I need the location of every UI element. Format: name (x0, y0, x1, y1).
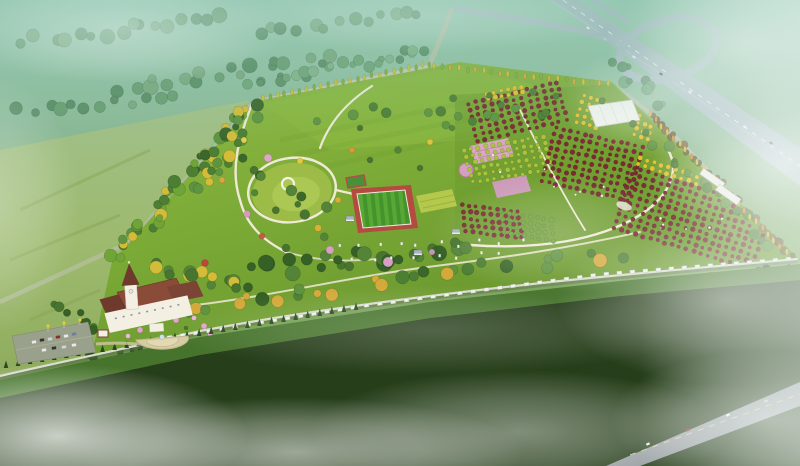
flowering-tree (202, 260, 209, 267)
tree (104, 249, 117, 262)
orchard-tree (512, 167, 516, 171)
tree (258, 255, 274, 271)
bee-box (414, 244, 416, 247)
orchard-tree (612, 167, 616, 171)
orchard-tree (608, 153, 612, 157)
orchard-tree (514, 173, 518, 177)
orchard-tree (617, 175, 621, 179)
bee-box (413, 256, 415, 259)
orchard-tree (509, 153, 513, 157)
orchard-tree (581, 168, 585, 172)
orchard-tree (483, 171, 488, 176)
orchard-tree (596, 170, 600, 174)
flowering-tree (315, 225, 322, 232)
aerial-rendering-svg (0, 0, 800, 466)
orchard-tree (559, 162, 563, 166)
tree (300, 210, 310, 220)
tree (441, 267, 454, 280)
tree (394, 255, 403, 264)
flowering-tree (126, 334, 131, 339)
flag-banner (46, 324, 49, 327)
orchard-tree (600, 151, 604, 155)
orchard-tree (571, 171, 576, 176)
clock-tower (124, 283, 138, 310)
bee-box (390, 257, 392, 260)
flag-banner (62, 321, 65, 324)
soccer-pitch (357, 190, 411, 228)
orchard-tree (469, 173, 473, 177)
orchard-tree (563, 149, 567, 153)
tree (223, 150, 235, 162)
orchard-tree (603, 164, 608, 169)
garden-hut-wall (346, 220, 354, 221)
tree (54, 302, 64, 312)
bee-box (401, 242, 403, 245)
orchard-tree (582, 161, 586, 165)
garden-hut-wall (414, 254, 422, 255)
orchard-tree (500, 175, 504, 179)
orchard-tree (489, 163, 494, 168)
tree (543, 168, 545, 170)
tree (286, 185, 297, 196)
flowering-tree (326, 246, 334, 254)
flag-banner (78, 318, 81, 321)
tower-clock (129, 289, 133, 293)
tree (116, 253, 125, 262)
orchard-tree (557, 168, 562, 173)
flowering-tree (297, 158, 303, 164)
tree (132, 219, 142, 229)
tree (256, 172, 265, 181)
aerial-rendering (0, 0, 800, 466)
orchard-tree (569, 157, 572, 160)
tree (150, 261, 163, 274)
flowering-tree (259, 233, 265, 239)
orchard-tree (474, 167, 478, 171)
tree (250, 166, 258, 174)
tree (321, 202, 332, 213)
orchard-tree (619, 168, 623, 172)
tree (208, 272, 218, 282)
tree (159, 195, 169, 205)
orchard-tree (485, 178, 489, 182)
orchard-tree (545, 159, 550, 164)
orchard-tree (485, 150, 489, 154)
tree (156, 214, 163, 221)
orchard-tree (636, 162, 640, 166)
orchard-tree (527, 163, 531, 167)
flowering-tree (367, 157, 373, 163)
bee-box (351, 258, 353, 261)
flowering-tree (264, 154, 272, 162)
orchard-tree (541, 162, 545, 166)
flowering-tree (335, 197, 341, 203)
flowering-tree (244, 211, 251, 218)
tree (295, 201, 301, 207)
orchard-tree (524, 158, 529, 163)
orchard-tree (610, 174, 614, 178)
orchard-tree (536, 170, 540, 174)
orchard-tree (570, 150, 575, 155)
orchard-tree (505, 167, 510, 172)
gatehouse (98, 330, 108, 337)
orchard-tree (606, 158, 610, 162)
flowering-tree (282, 244, 290, 252)
tree (251, 189, 258, 196)
bee-box (374, 259, 376, 262)
orchard-tree (615, 154, 619, 158)
orchard-tree (532, 156, 535, 159)
orchard-tree (471, 153, 475, 157)
orchard-tree (465, 162, 469, 166)
orchard-tree (473, 159, 478, 164)
tree (345, 262, 354, 271)
orchard-tree (633, 166, 637, 170)
orchard-tree (598, 163, 601, 166)
orchard-tree (481, 164, 486, 169)
tree (333, 255, 342, 264)
orchard-tree (599, 157, 604, 162)
orchard-tree (467, 167, 471, 171)
orchard-tree (634, 182, 639, 187)
mist-blob (170, 285, 690, 375)
orchard-tree (534, 163, 538, 167)
orchard-tree (591, 155, 596, 160)
orchard-tree (552, 160, 557, 165)
orchard-tree (478, 179, 482, 183)
orchard-tree (487, 156, 491, 160)
orchard-tree (575, 160, 578, 163)
orchard-tree (507, 174, 511, 178)
orchard-tree (517, 159, 521, 163)
tree (216, 169, 223, 176)
orchard-tree (528, 170, 533, 175)
tree (418, 266, 429, 277)
orchard-tree (496, 163, 500, 167)
tree (213, 158, 223, 168)
tree (285, 266, 300, 281)
tree (231, 283, 240, 292)
tree (63, 309, 70, 316)
tree (396, 270, 409, 283)
orchard-tree (477, 172, 481, 176)
tree (297, 192, 307, 202)
orchard-tree (504, 161, 508, 165)
orchard-tree (614, 160, 618, 164)
orchard-tree (521, 172, 525, 176)
orchard-tree (622, 155, 626, 159)
tree (283, 253, 296, 266)
orchard-tree (553, 154, 558, 159)
tree (118, 235, 127, 244)
orchard-tree (589, 162, 594, 167)
orchard-tree (547, 152, 551, 156)
orchard-tree (587, 169, 591, 173)
orchard-tree (633, 171, 637, 175)
basketball-court (346, 175, 366, 188)
orchard-tree (603, 172, 606, 175)
right-fog-fade (640, 0, 800, 466)
bee-box (358, 244, 360, 247)
tree (77, 309, 84, 316)
orchard-tree (551, 166, 555, 170)
tree (320, 233, 328, 241)
tree (193, 184, 203, 194)
orchard-tree (630, 172, 634, 176)
porch (149, 323, 164, 332)
tree (207, 167, 215, 175)
orchard-tree (510, 160, 513, 163)
orchard-tree (621, 161, 626, 166)
flowering-tree (417, 165, 423, 171)
orchard-tree (627, 179, 632, 184)
orchard-tree (567, 164, 571, 168)
tree (168, 175, 181, 188)
orchard-tree (577, 152, 581, 156)
orchard-tree (464, 154, 469, 159)
orchard-tree (491, 170, 495, 174)
tree (357, 247, 372, 262)
bee-box (380, 243, 382, 246)
tree (185, 269, 198, 282)
tree (191, 160, 199, 168)
orchard-tree (519, 165, 523, 169)
orchard-tree (492, 177, 496, 181)
orchard-tree (573, 165, 578, 170)
orchard-tree (522, 150, 527, 155)
flowering-tree (137, 327, 143, 333)
tree (207, 280, 216, 289)
bee-box (339, 244, 341, 247)
orchard-tree (471, 180, 475, 184)
tree (499, 171, 502, 174)
tree (492, 154, 495, 157)
orchard-tree (561, 156, 565, 160)
orchard-tree (627, 163, 632, 168)
tree (272, 207, 279, 214)
orchard-tree (480, 158, 484, 162)
flowering-tree (219, 177, 225, 183)
orchard-tree (517, 153, 521, 157)
orchard-tree (584, 153, 589, 158)
tree (301, 254, 312, 265)
orchard-tree (632, 177, 637, 182)
tree (317, 263, 326, 272)
tree (165, 270, 175, 280)
tree (409, 271, 419, 281)
fountain (160, 335, 165, 340)
tree (247, 262, 256, 271)
orchard-tree (564, 171, 569, 176)
orchard-tree (539, 155, 543, 159)
orchard-tree (629, 157, 634, 162)
orchard-tree (478, 153, 481, 156)
orchard-tree (626, 171, 630, 175)
tree (243, 283, 252, 292)
tree (205, 178, 213, 186)
orchard-tree (494, 156, 498, 160)
tree (238, 154, 247, 163)
orchard-tree (502, 154, 506, 158)
